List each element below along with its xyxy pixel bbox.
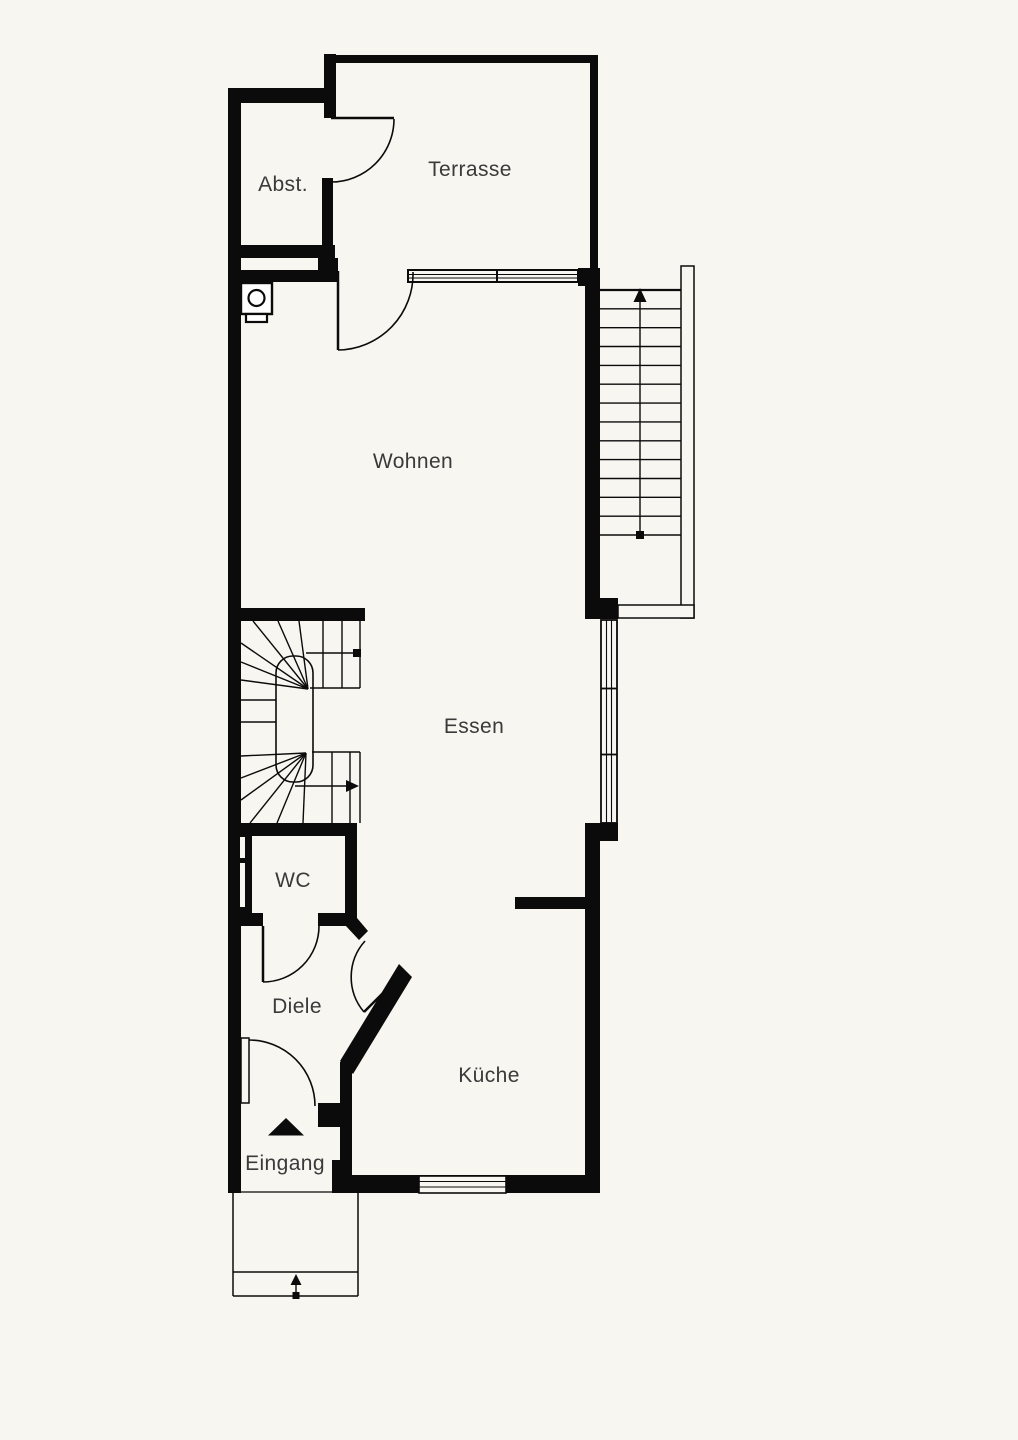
door-swing-arc	[263, 926, 319, 982]
room-label-eingang: Eingang	[245, 1152, 325, 1176]
exterior-stair	[600, 266, 694, 618]
wall-eingang-stub	[318, 1103, 352, 1127]
wall-wc-bottom-left	[241, 913, 263, 926]
terrasse-top-wall	[327, 55, 598, 63]
wc-niche-upper	[240, 837, 245, 858]
door-terrasse-wohnen	[338, 271, 413, 350]
winder-direction-arrow-icon	[346, 780, 359, 792]
wall-window-block-bottomright	[585, 823, 618, 841]
wall-eingang-right-base	[332, 1160, 352, 1193]
wc-niche-lower	[240, 863, 245, 907]
wall-winder-top	[241, 608, 365, 621]
wall-terrasse-pier	[324, 54, 336, 118]
door-swing-arc	[338, 272, 413, 350]
entry-porch	[233, 1192, 358, 1299]
room-label-kueche: Küche	[458, 1064, 520, 1088]
stair-enclosure-bottom-wall	[618, 605, 694, 618]
door-leaf	[241, 1038, 249, 1103]
room-label-essen: Essen	[444, 715, 504, 739]
terrasse-right-wall	[590, 55, 598, 270]
floor-plan-canvas: Abst. Terrasse Wohnen Essen WC Diele Küc…	[0, 0, 1018, 1440]
room-label-terrasse: Terrasse	[428, 158, 512, 182]
door-diele-eingang	[241, 1038, 315, 1106]
wall-abst-bottom	[228, 245, 335, 258]
wall-diagonal-stub	[345, 918, 368, 940]
wall-stair-junction-block	[585, 598, 618, 619]
entry-step-arrow-icon	[291, 1274, 302, 1285]
wall-right-lower	[585, 841, 600, 1193]
winder-stair	[241, 619, 361, 823]
wall-wohnen-top	[228, 270, 338, 282]
entry-step-arrow-base	[293, 1292, 300, 1299]
structural-walls	[228, 54, 618, 1193]
entrance-triangle-icon	[268, 1118, 304, 1136]
wall-winder-bottom	[228, 823, 357, 836]
room-label-wc: WC	[275, 869, 311, 893]
window-wohnen-terrasse	[408, 270, 578, 282]
wall-top	[228, 88, 331, 103]
wc-wall-niches	[240, 837, 245, 907]
door-swing-arc	[249, 1040, 315, 1106]
wall-connector-block	[318, 258, 338, 271]
winder-walkline-start-marker	[353, 649, 361, 657]
wall-right-upper	[585, 268, 600, 598]
wall-wc-right	[345, 823, 357, 918]
stair-walkline-start-marker	[636, 531, 644, 539]
room-label-diele: Diele	[272, 995, 322, 1019]
window-kueche-bottom	[419, 1176, 506, 1193]
boiler-dial	[249, 290, 265, 306]
winder-tread	[303, 753, 306, 823]
door-abst-terrasse	[331, 118, 394, 182]
boiler-icon	[241, 283, 272, 322]
door-swing-arc	[351, 941, 365, 1012]
winder-tread	[241, 753, 306, 756]
floor-plan-drawing	[0, 0, 1018, 1440]
room-label-abstellraum: Abst.	[258, 173, 308, 197]
door-swing-arc	[331, 119, 394, 182]
door-wc-diele	[263, 926, 319, 982]
wall-kueche-stub	[515, 897, 585, 909]
stair-enclosure-right-wall	[681, 266, 694, 618]
room-label-wohnen: Wohnen	[373, 450, 453, 474]
window-essen-side	[601, 620, 617, 823]
boiler-base	[246, 314, 267, 322]
